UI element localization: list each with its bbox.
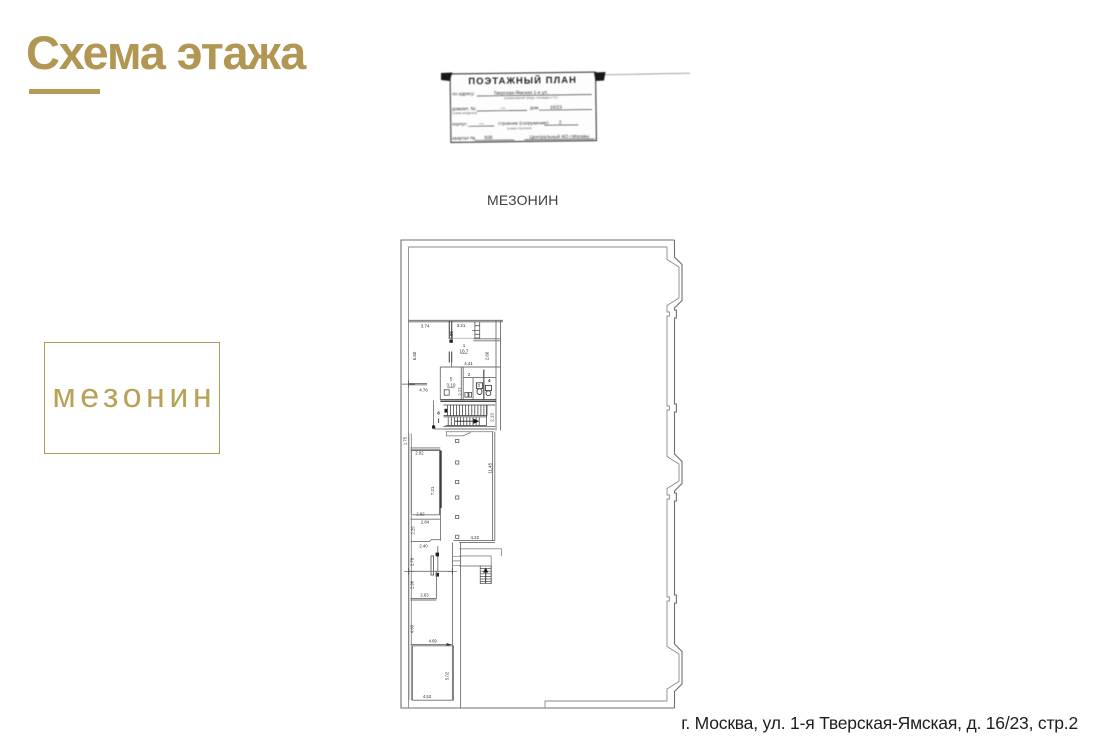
svg-text:4.53: 4.53 [423,694,432,699]
svg-text:4.22: 4.22 [471,535,480,540]
svg-text:2.96: 2.96 [410,580,415,589]
svg-text:2.79: 2.79 [409,557,414,566]
svg-text:4.69: 4.69 [429,638,438,643]
svg-text:11.45: 11.45 [487,462,492,473]
svg-text:2.13: 2.13 [490,413,495,422]
svg-text:4: 4 [488,378,491,383]
svg-text:6: 6 [437,410,440,416]
svg-text:2.25: 2.25 [411,526,416,535]
svg-text:2: 2 [468,372,471,377]
svg-text:дом: дом [530,105,538,110]
svg-text:4.41: 4.41 [464,361,473,366]
svg-text:3.10: 3.10 [447,383,456,388]
svg-text:2.40: 2.40 [419,543,428,548]
svg-text:4.76: 4.76 [419,387,428,392]
svg-text:корпус:: корпус: [452,121,468,126]
svg-text:строение (сооружение):: строение (сооружение): [498,120,549,126]
svg-text:по адресу:: по адресу: [452,91,475,96]
svg-text:3.74: 3.74 [421,323,430,328]
svg-text:7.21: 7.21 [430,486,435,495]
svg-text:4.05: 4.05 [449,331,454,340]
svg-text:ПОЭТАЖНЫЙ ПЛАН: ПОЭТАЖНЫЙ ПЛАН [468,74,577,86]
svg-text:5.02: 5.02 [444,671,449,680]
svg-text:2: 2 [559,120,562,126]
svg-text:квартал №: квартал № [452,135,475,140]
svg-text:2.77: 2.77 [458,387,463,396]
svg-text:3: 3 [477,383,480,388]
svg-text:4.60: 4.60 [410,624,415,633]
svg-text:(номер владения): (номер владения) [452,111,477,115]
svg-text:16.7: 16.7 [460,349,469,354]
svg-text:608: 608 [484,135,492,141]
svg-text:1: 1 [463,343,466,348]
svg-text:5: 5 [450,377,453,382]
svg-text:2.02: 2.02 [415,450,424,455]
svg-text:6.50: 6.50 [412,351,417,360]
svg-text:2.92: 2.92 [416,511,425,516]
svg-text:2.84: 2.84 [421,519,430,524]
svg-text:2.66: 2.66 [485,351,490,360]
svg-text:(наименование улицы, площади и: (наименование улицы, площади и т.п.) [504,95,558,100]
svg-text:2.63: 2.63 [420,593,429,598]
svg-text:—: — [479,121,484,127]
svg-text:(номер строения): (номер строения) [507,126,531,130]
svg-text:16/23: 16/23 [550,105,562,111]
svg-text:3.21: 3.21 [457,323,466,328]
svg-text:1.75: 1.75 [403,436,408,445]
svg-text:—: — [500,105,505,111]
